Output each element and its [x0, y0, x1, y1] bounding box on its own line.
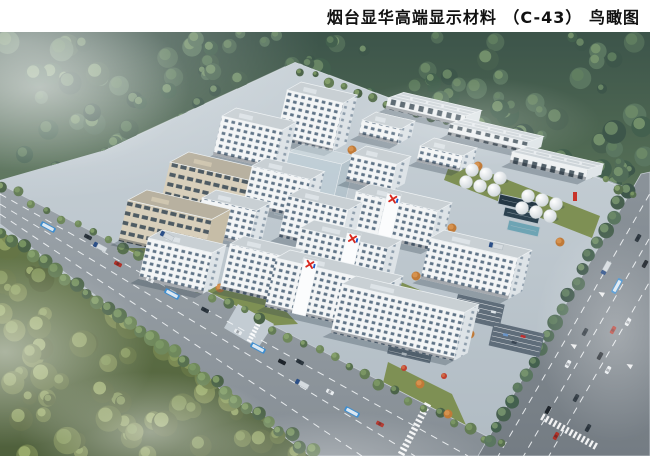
storage-tank [516, 202, 529, 215]
red-sign [573, 192, 577, 201]
storage-tank [460, 176, 473, 189]
mist [340, 77, 600, 167]
title-bar: 烟台显华高端显示材料 （C-43） 鸟瞰图 [0, 0, 650, 32]
storage-tank [474, 180, 487, 193]
storage-tank [530, 206, 543, 219]
storage-tank [536, 194, 549, 207]
storage-tank [544, 210, 557, 223]
storage-tank [480, 168, 493, 181]
page-title: 烟台显华高端显示材料 （C-43） 鸟瞰图 [327, 4, 640, 28]
storage-tank [522, 190, 535, 203]
storage-tank [488, 184, 501, 197]
rendering-page: 烟台显华高端显示材料 （C-43） 鸟瞰图 [0, 0, 650, 460]
storage-tank [550, 198, 563, 211]
aerial-rendering-container [0, 32, 650, 456]
aerial-rendering [0, 32, 650, 456]
storage-tank [494, 172, 507, 185]
